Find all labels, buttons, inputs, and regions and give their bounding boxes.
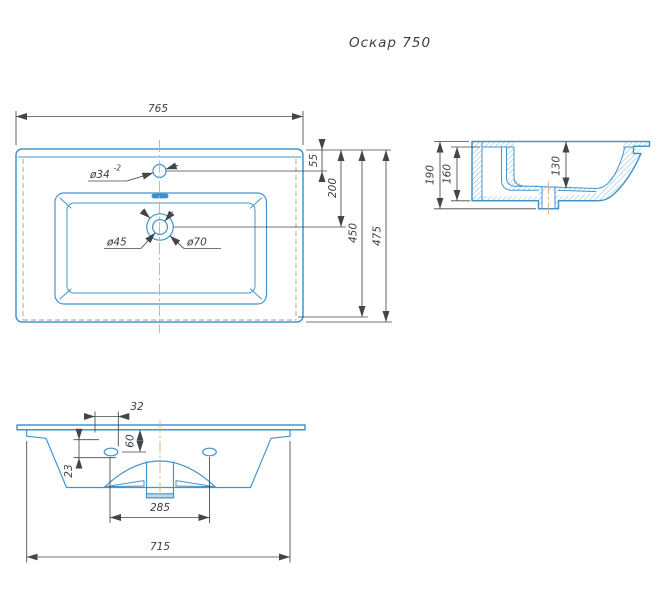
dim-55: 55	[306, 142, 391, 179]
top-view: ø34 -2 ø45 ø70 765 55	[16, 103, 392, 333]
dim-200-label: 200	[327, 178, 339, 198]
mounting-hole-right	[203, 448, 217, 456]
dim-23-label: 23	[63, 464, 75, 477]
side-view: 190 160 130	[425, 142, 650, 215]
dim-765-label: 765	[148, 103, 168, 115]
drain-hole-circle	[153, 220, 168, 235]
dim-32-label: 32	[130, 401, 144, 413]
leader-arrow	[170, 236, 184, 249]
basin-corner-ticks	[60, 198, 262, 299]
drain-recess-circle	[147, 214, 173, 240]
dim-60: 60	[122, 430, 146, 452]
overflow-slot	[152, 194, 169, 199]
backwall-hatch	[472, 142, 482, 201]
right-side-profile	[251, 430, 291, 488]
dim-450-label: 450	[348, 223, 360, 243]
drawing-sheet: Оскар 750 ø34 -2 ø45	[0, 0, 664, 600]
dim-60-label: 60	[125, 434, 137, 448]
drain-dia-callout: ø45	[104, 212, 173, 249]
deck-bar	[17, 425, 305, 430]
basin-backwall-hatch	[507, 147, 515, 178]
bottom-right-hatch	[559, 193, 606, 201]
page-title: Оскар 750	[349, 35, 431, 51]
leader-arrow	[127, 173, 153, 181]
countertop-outline	[16, 149, 303, 322]
dim-450: 450	[298, 150, 368, 317]
basin-outer-outline	[55, 193, 267, 304]
leader-arrow	[141, 233, 155, 249]
dim-285-label: 285	[150, 502, 170, 514]
leader-arrow-opposite	[166, 165, 178, 169]
dim-190-label: 190	[425, 165, 437, 185]
front-view: 32 60 23 285 715	[17, 401, 305, 563]
recess-dia-label: ø70	[186, 237, 207, 249]
left-side-profile	[27, 430, 67, 488]
faucet-dia-tolerance: -2	[114, 164, 122, 173]
frontwall-hatch	[600, 147, 641, 200]
lip-hook-hatch	[634, 146, 642, 153]
floor-hatch	[507, 178, 597, 192]
basin-inner-outline	[67, 203, 255, 293]
dim-475-label: 475	[372, 226, 384, 246]
dim-200: 200	[327, 150, 341, 227]
dim-160-label: 160	[442, 164, 454, 184]
leader-arrow-opposite	[145, 213, 151, 218]
faucet-dia-label: ø34	[89, 169, 110, 181]
dim-715-label: 715	[150, 541, 170, 553]
dim-765: 765	[16, 103, 303, 145]
deck-left-hatch	[482, 142, 514, 148]
technical-drawing: Оскар 750 ø34 -2 ø45	[0, 0, 664, 600]
dim-130-label: 130	[551, 156, 563, 176]
dim-130: 130	[551, 142, 567, 189]
recess-dia-callout: ø70	[145, 213, 221, 248]
mounting-hole-left	[104, 448, 118, 456]
dim-55-label: 55	[308, 154, 320, 168]
drain-dia-label: ø45	[106, 237, 127, 249]
